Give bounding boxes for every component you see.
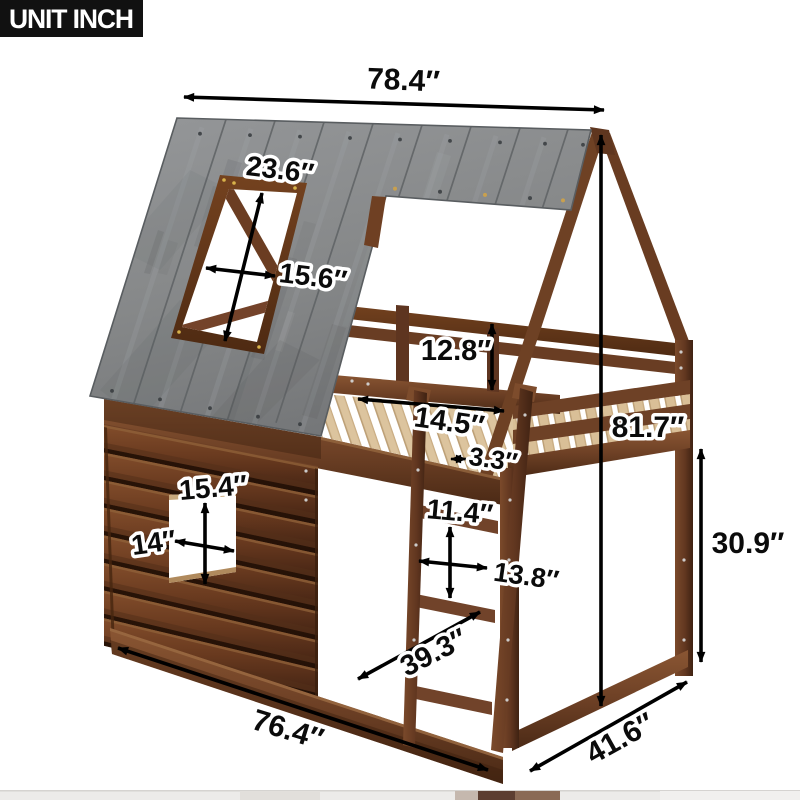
svg-text:15.4″: 15.4″ — [178, 469, 248, 506]
svg-text:81.7″: 81.7″ — [612, 411, 685, 444]
svg-text:12.8″: 12.8″ — [421, 335, 491, 367]
svg-text:11.4″: 11.4″ — [425, 493, 494, 530]
svg-text:30.9″: 30.9″ — [712, 527, 785, 560]
svg-text:14″: 14″ — [129, 524, 177, 561]
svg-text:UNIT INCH: UNIT INCH — [9, 4, 134, 34]
svg-text:78.4″: 78.4″ — [366, 62, 440, 98]
